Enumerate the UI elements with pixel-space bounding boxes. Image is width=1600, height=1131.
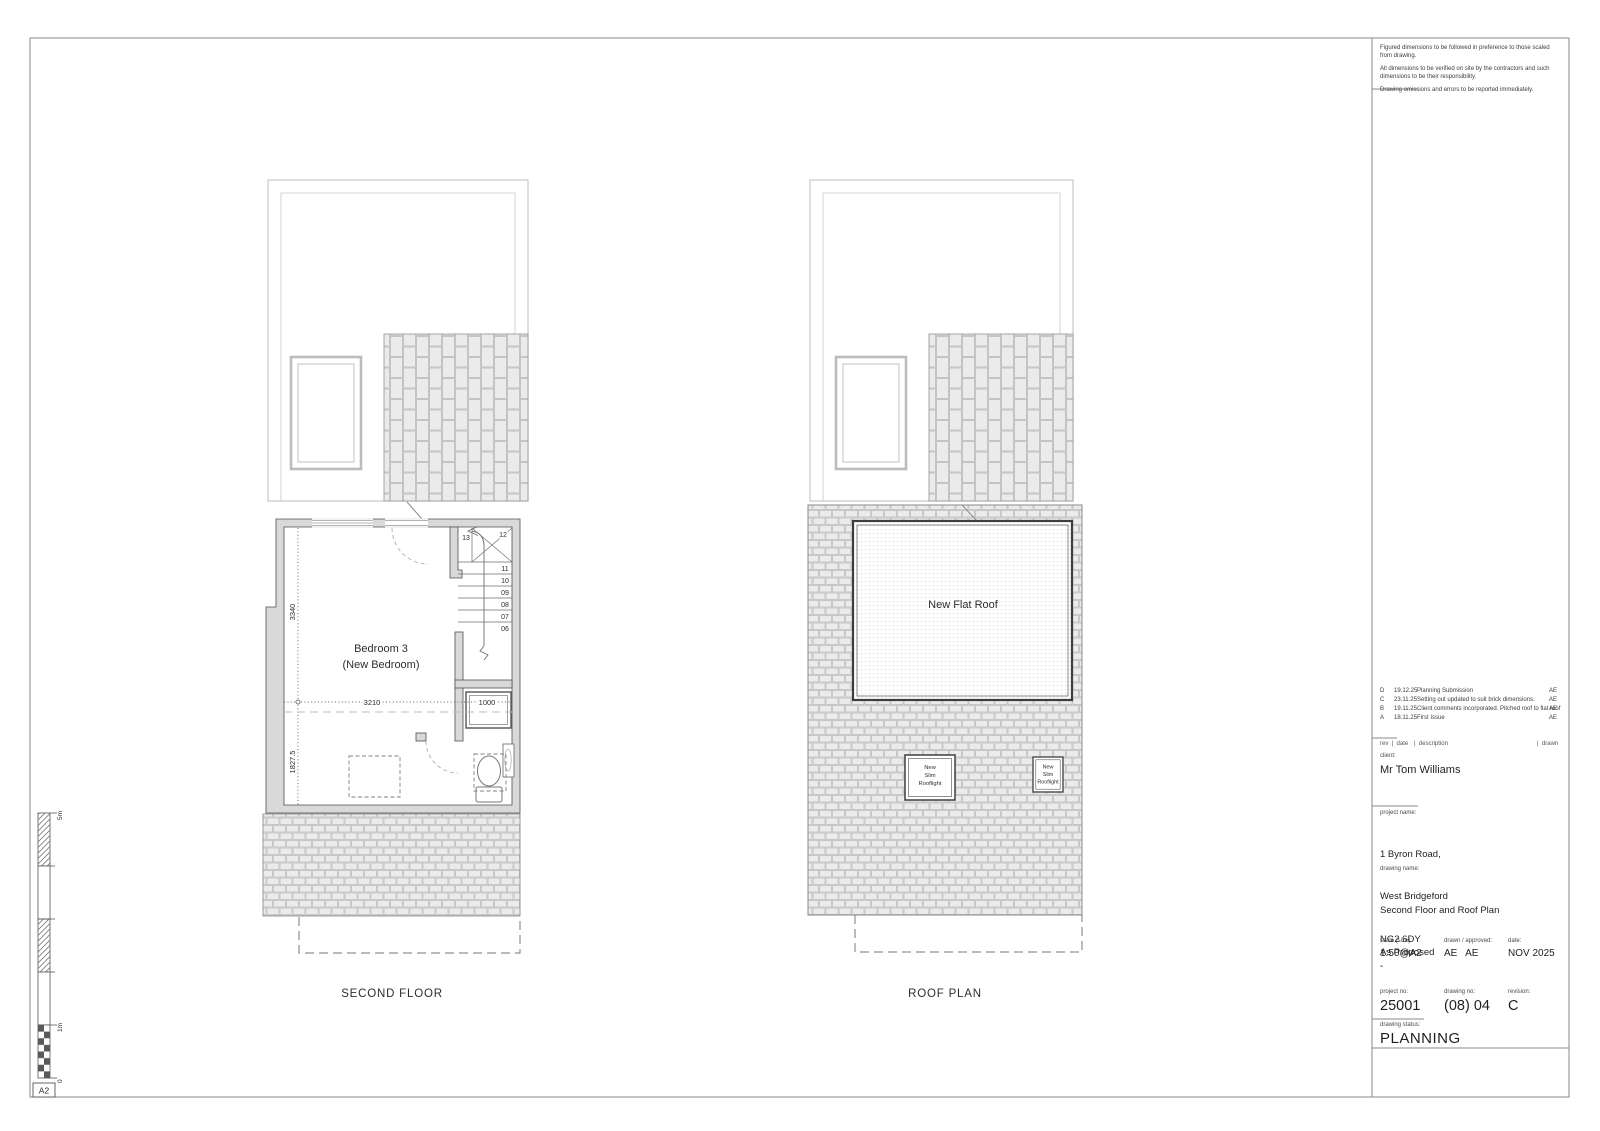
rooflight-label-line: New (1043, 765, 1054, 771)
revision-header-description: | description (1414, 741, 1448, 747)
revision-description: Setting out updated to suit brick dimens… (1417, 697, 1535, 703)
scale-label: scale (size): (1380, 938, 1412, 944)
new-slim-rooflight-right: New Slim Rooflight (1033, 757, 1063, 792)
door-opening (385, 519, 428, 528)
flat-roof-label: New Flat Roof (928, 599, 999, 611)
client-name: Mr Tom Williams (1380, 762, 1460, 779)
upper-brick-hatch (384, 334, 528, 501)
drawn-approved-label: drawn / approved: (1444, 938, 1492, 944)
client-label: client: (1380, 753, 1396, 759)
scale-bar: 5m 1m 0 A2 (33, 811, 64, 1097)
project-name-line: 1 Byron Road, (1380, 848, 1448, 862)
revision-date: 19.11.25 (1394, 706, 1417, 712)
drawing-status-value: PLANNING (1380, 1030, 1461, 1047)
dim-upper-height: 3340 (288, 604, 297, 621)
note-text: All dimensions to be verified on site by… (1380, 65, 1562, 82)
dim-width: 3210 (364, 698, 381, 707)
revision-date: 19.12.25 (1394, 688, 1417, 694)
date-value: NOV 2025 (1508, 948, 1555, 959)
revision-drawn: AE (1549, 715, 1557, 721)
drawing-name: Second Floor and Roof Plan As Proposed (1380, 875, 1499, 975)
scale-sub-value: - (1380, 961, 1383, 972)
eaves-diagonal (407, 502, 422, 519)
revision-header-rev-date: rev | date (1380, 741, 1408, 747)
sheet-graphics: 13 12 11 10 09 08 07 06 (0, 0, 1600, 1131)
paper-size-label: A2 (39, 1086, 50, 1096)
room-label-line1: Bedroom 3 (354, 643, 408, 655)
wc-door-swing-arc (426, 741, 458, 773)
title-block-notes: Figured dimensions to be followed in pre… (1380, 44, 1562, 98)
roof-below-dashed-outline (299, 917, 520, 953)
project-no-label: project no: (1380, 989, 1408, 995)
existing-rooflight (836, 357, 906, 469)
lower-roof-hatch (263, 814, 520, 916)
basin (503, 744, 514, 777)
stair-number: 13 (462, 535, 470, 542)
revision-header-drawn: | drawn (1537, 741, 1558, 747)
drawing-name-label: drawing name: (1380, 866, 1419, 872)
revision-rev: B (1380, 706, 1384, 712)
stair-number: 10 (501, 578, 509, 585)
second-floor-title: SECOND FLOOR (341, 988, 443, 1000)
stair-number: 12 (499, 532, 507, 539)
door-swing-arc (392, 528, 428, 564)
roof-plan: New Flat Roof New Slim Rooflight New Sli… (808, 180, 1082, 1000)
rooflight-label-line: New (924, 765, 936, 771)
revision-label: revision: (1508, 989, 1530, 995)
revision-drawn: AE (1549, 706, 1557, 712)
sheet-border (30, 38, 1569, 1097)
second-floor-plan: 13 12 11 10 09 08 07 06 (263, 180, 528, 1000)
revision-drawn: AE (1549, 697, 1557, 703)
note-text: Figured dimensions to be followed in pre… (1380, 44, 1562, 61)
project-no-value: 25001 (1380, 998, 1420, 1014)
rooflight-label-line: Rooflight (919, 781, 942, 787)
scale-bar-1m-label: 1m (57, 1023, 64, 1032)
stair-direction-arrow (468, 527, 488, 661)
revision-rev: A (1380, 715, 1384, 721)
stair-numbers: 13 12 11 10 09 08 07 06 (462, 532, 509, 633)
drawing-no-label: drawing no: (1444, 989, 1475, 995)
drawn-approved-value: AE AE (1444, 948, 1478, 959)
drawing-sheet: 13 12 11 10 09 08 07 06 (0, 0, 1600, 1131)
existing-rooflight (291, 357, 361, 469)
revision-description: Planning Submission (1417, 688, 1473, 694)
stair-number: 07 (501, 614, 509, 621)
revision-date: 23.11.25 (1394, 697, 1417, 703)
rooflight-label-line: Slim (1043, 772, 1054, 778)
rooflight-label-line: Rooflight (1037, 780, 1059, 786)
rooflight-label-line: Slim (924, 773, 935, 779)
toilet (476, 756, 502, 802)
drawing-status-label: drawing status: (1380, 1022, 1420, 1028)
note-text: Drawing omissions and errors to be repor… (1380, 86, 1562, 94)
revision-rev: C (1380, 697, 1384, 703)
drawing-name-line: Second Floor and Roof Plan (1380, 904, 1499, 918)
revision-description: Client comments incorporated. Pitched ro… (1417, 706, 1560, 712)
scale-bar-0-label: 0 (57, 1079, 64, 1083)
new-slim-rooflight-left: New Slim Rooflight (905, 755, 955, 800)
bedroom-rooflight-dashed (349, 756, 400, 797)
revision-drawn: AE (1549, 688, 1557, 694)
drawing-no-value: (08) 04 (1444, 998, 1490, 1014)
dim-landing-width: 1000 (479, 698, 496, 707)
stair-number: 09 (501, 590, 509, 597)
scale-bar-5m-label: 5m (57, 811, 64, 820)
roof-below-dashed-outline (855, 915, 1082, 952)
revision-date: 18.11.25 (1394, 715, 1417, 721)
revision-value: C (1508, 998, 1518, 1014)
room-label-line2: (New Bedroom) (342, 659, 419, 671)
revision-description: First Issue (1417, 715, 1445, 721)
date-label: date: (1508, 938, 1521, 944)
roof-plan-title: ROOF PLAN (908, 988, 982, 1000)
scale-value: 1:50@A2 (1380, 948, 1422, 959)
project-name-label: project name: (1380, 810, 1416, 816)
window-opening (312, 519, 373, 528)
revision-rev: D (1380, 688, 1384, 694)
stair-number: 08 (501, 602, 509, 609)
stair-number: 06 (501, 626, 509, 633)
stair-number: 11 (501, 566, 508, 573)
new-flat-roof: New Flat Roof (853, 521, 1072, 700)
dim-lower-height: 1827.5 (288, 751, 297, 774)
upper-brick-hatch (929, 334, 1073, 501)
